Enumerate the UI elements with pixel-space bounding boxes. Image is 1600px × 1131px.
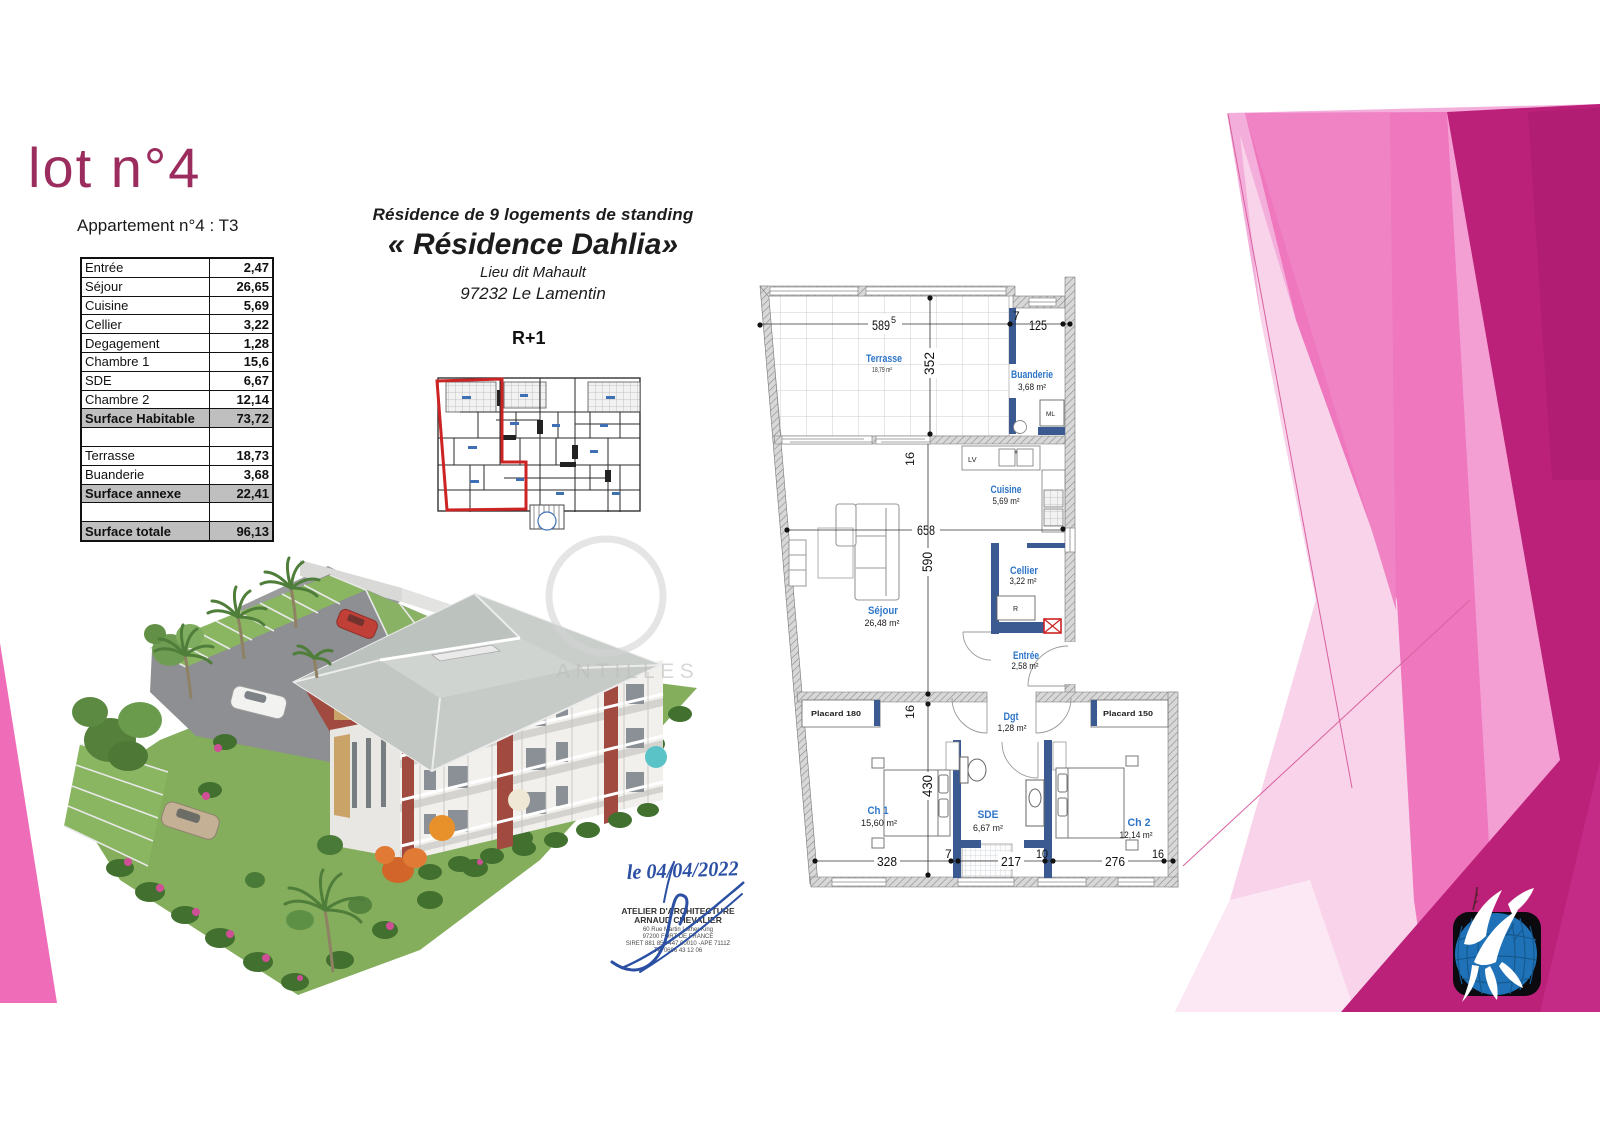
svg-text:589: 589 [872, 317, 890, 333]
svg-text:SDE: SDE [978, 809, 999, 821]
svg-text:328: 328 [877, 854, 897, 869]
svg-text:Terrasse: Terrasse [866, 353, 902, 365]
svg-text:Placard 150: Placard 150 [1103, 711, 1153, 718]
svg-text:352: 352 [921, 352, 937, 375]
svg-text:16: 16 [1152, 847, 1164, 861]
svg-text:Ch 2: Ch 2 [1128, 817, 1151, 829]
svg-text:Cuisine: Cuisine [991, 484, 1022, 496]
svg-text:217: 217 [1001, 854, 1021, 869]
svg-text:16: 16 [903, 452, 917, 466]
svg-text:ARNAUD CHEVALIER: ARNAUD CHEVALIER [634, 915, 722, 925]
svg-text:3,68 m²: 3,68 m² [1018, 382, 1046, 392]
svg-text:Ch 1: Ch 1 [868, 805, 889, 817]
svg-text:125: 125 [1029, 317, 1047, 333]
svg-text:7: 7 [1013, 309, 1020, 323]
svg-text:18,79 m²: 18,79 m² [872, 367, 892, 374]
svg-text:Placard 180: Placard 180 [811, 711, 861, 718]
svg-text:Séjour: Séjour [868, 605, 899, 617]
svg-text:26,48 m²: 26,48 m² [865, 618, 900, 628]
svg-text:12,14 m²: 12,14 m² [1120, 830, 1153, 840]
svg-text:Dgt: Dgt [1004, 711, 1019, 723]
svg-text:Buanderie: Buanderie [1011, 369, 1053, 381]
svg-text:1,28 m²: 1,28 m² [998, 723, 1027, 733]
svg-text:5: 5 [891, 315, 896, 325]
svg-text:658: 658 [917, 522, 935, 538]
svg-text:15,60 m²: 15,60 m² [861, 818, 897, 828]
svg-text:10: 10 [1036, 847, 1048, 861]
svg-text:5,69 m²: 5,69 m² [993, 496, 1020, 506]
svg-text:R: R [1013, 606, 1018, 613]
svg-text:2,58 m²: 2,58 m² [1012, 661, 1039, 671]
svg-text:3,22 m²: 3,22 m² [1010, 576, 1037, 586]
svg-text:16: 16 [903, 705, 917, 719]
svg-text:ML: ML [1046, 411, 1055, 418]
svg-text:590: 590 [919, 552, 935, 572]
svg-text:276: 276 [1105, 854, 1125, 869]
svg-text:le 04/04/2022: le 04/04/2022 [626, 856, 739, 884]
svg-text:ANTILLES: ANTILLES [556, 660, 699, 683]
svg-text:7: 7 [945, 847, 952, 861]
svg-text:430: 430 [919, 775, 935, 797]
svg-text:LV: LV [968, 455, 977, 464]
svg-text:6,67 m²: 6,67 m² [973, 823, 1003, 833]
